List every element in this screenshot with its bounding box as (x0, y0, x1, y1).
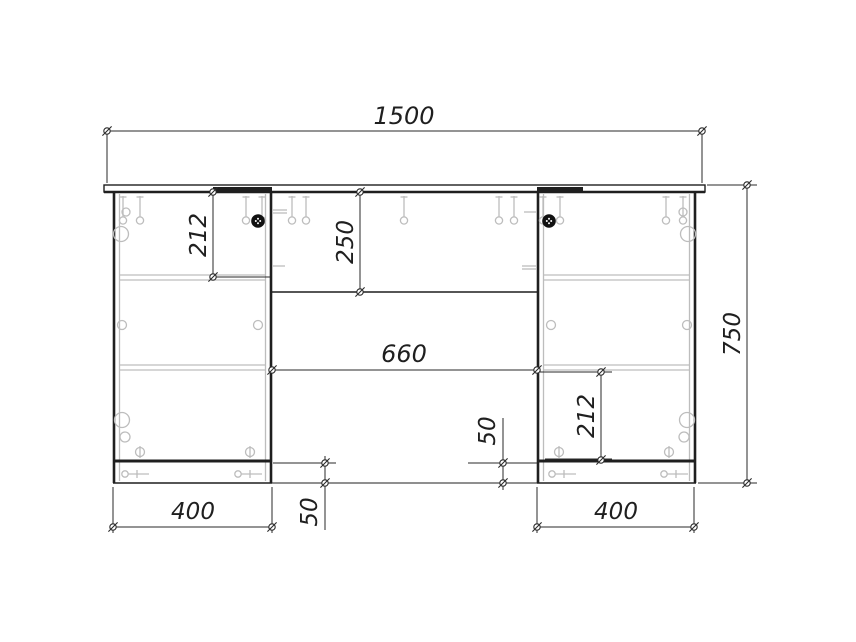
desk-technical-drawing-page: 1500 750 212 250 660 212 50 (0, 0, 856, 642)
right-pedestal-shelf-lines (544, 275, 689, 370)
dim-label-660: 660 (381, 340, 427, 368)
dim-label-750: 750 (720, 312, 746, 356)
right-pedestal (537, 192, 696, 483)
dimension-right-bottom-section: 212 (540, 367, 612, 464)
dimension-kneehole-width: 660 (267, 340, 541, 375)
dim-label-50-right: 50 (475, 416, 501, 445)
dimension-plinth-left: 50 (273, 456, 336, 530)
left-pedestal-shelf-lines (120, 275, 265, 370)
dim-label-1500: 1500 (373, 102, 434, 130)
dim-label-212-left: 212 (186, 213, 212, 257)
dimension-width-total: 1500 (102, 102, 706, 183)
kneehole (272, 292, 537, 483)
dimension-left-top-section: 212 (186, 187, 270, 281)
dimension-apron-height: 250 (333, 187, 365, 296)
cam-lock-icon (542, 214, 556, 228)
dim-label-250: 250 (333, 220, 359, 264)
dim-label-400-left: 400 (171, 499, 215, 525)
dimension-height-total: 750 (698, 180, 757, 487)
dim-label-50-left: 50 (297, 497, 323, 526)
cam-lock-icon (251, 214, 265, 228)
dimension-pedestal-right-width: 400 (532, 487, 698, 533)
dimension-plinth-right: 50 (468, 416, 537, 490)
desk-front-elevation: 1500 750 212 250 660 212 50 (0, 0, 856, 642)
dimension-pedestal-left-width: 400 (108, 487, 276, 533)
dim-label-400-right: 400 (594, 499, 638, 525)
dim-label-212-right: 212 (574, 394, 600, 438)
tabletop (104, 185, 705, 192)
